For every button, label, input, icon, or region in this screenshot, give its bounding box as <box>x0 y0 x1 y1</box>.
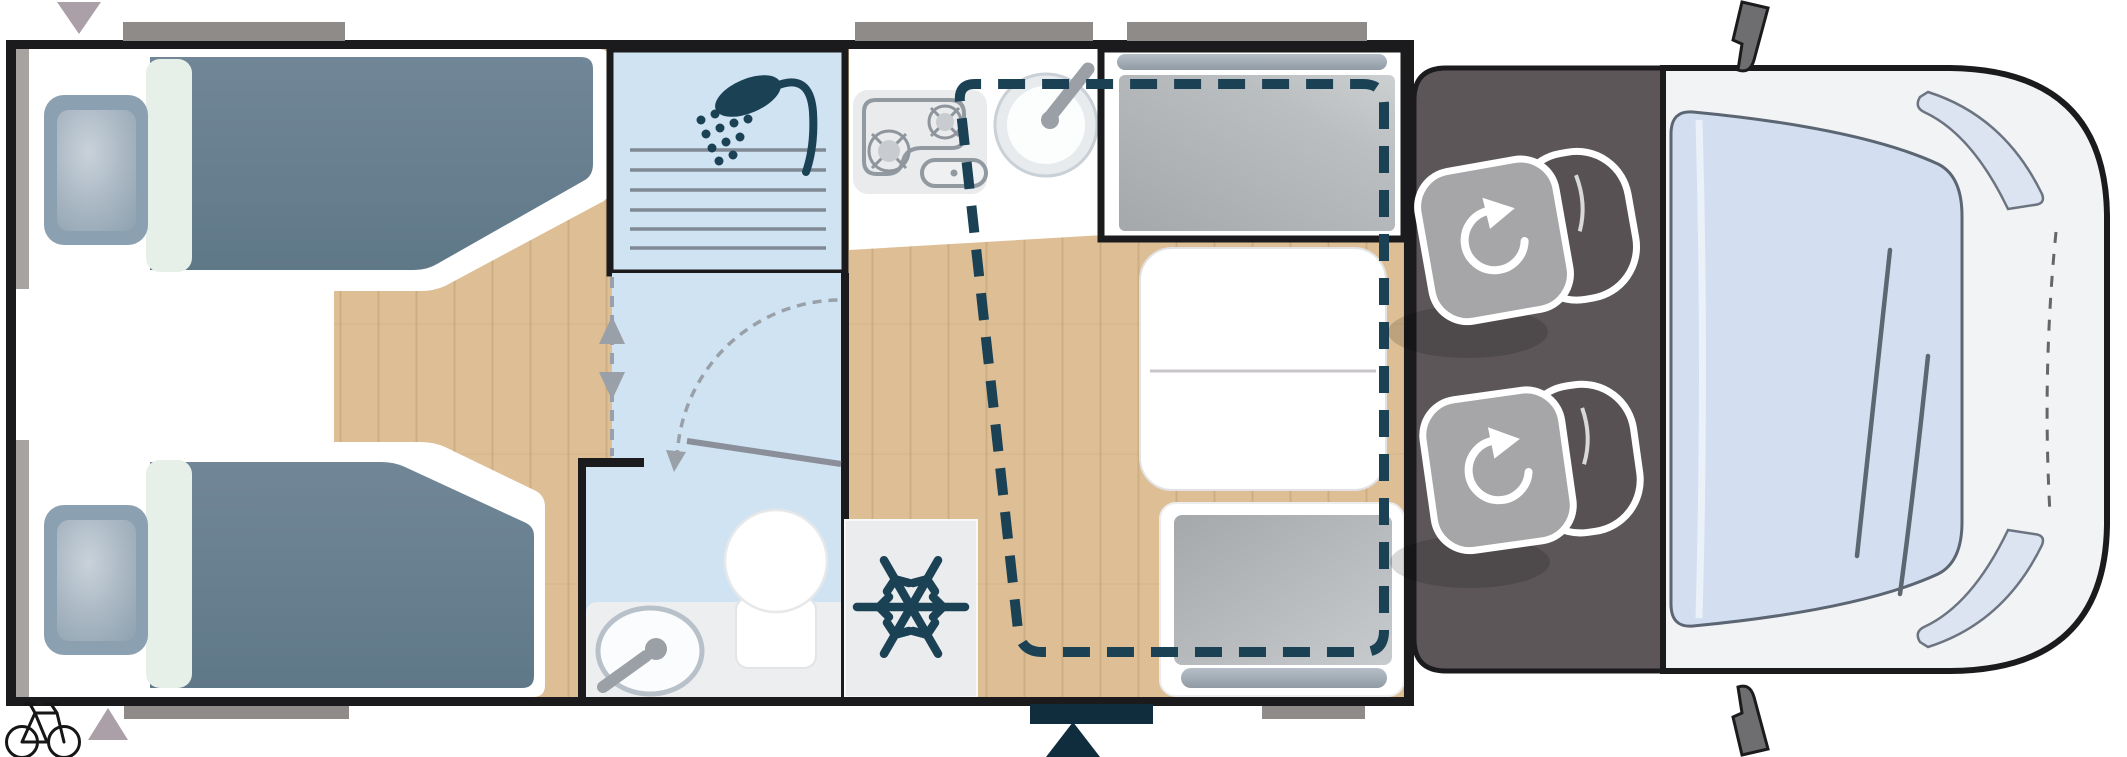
twin-bed-bottom <box>16 442 545 697</box>
window-marker <box>123 22 345 41</box>
washbasin-icon <box>598 608 702 694</box>
bedside-cabinet <box>16 291 334 442</box>
cab <box>1388 68 1663 671</box>
bicycle-icon <box>7 704 80 757</box>
wing-mirror-top <box>1733 2 1768 71</box>
entry-triangle-icon <box>1046 722 1100 757</box>
rear-window-top <box>16 49 29 289</box>
headrest-bar <box>1181 668 1387 688</box>
bench-front <box>1101 49 1404 239</box>
window-marker <box>124 706 349 719</box>
bathroom-wall-left <box>578 458 586 697</box>
seat-cushion <box>1418 385 1578 555</box>
motorhome-floorplan <box>0 0 2127 757</box>
wing-mirror-bottom <box>1733 686 1768 755</box>
shower-room <box>610 49 845 273</box>
entrance-step <box>1030 704 1153 724</box>
bench-rear <box>1160 503 1404 696</box>
seat-cushion <box>1119 75 1395 231</box>
bathroom-wall-stub <box>578 458 644 467</box>
bathroom <box>578 273 849 697</box>
dinette-table <box>1140 248 1386 490</box>
marker-triangle-icon <box>57 2 101 34</box>
seat-cushion <box>1412 153 1576 327</box>
window-marker <box>1127 22 1367 41</box>
refrigerator <box>845 520 977 697</box>
window-marker <box>1262 706 1365 719</box>
windshield <box>1671 112 1962 626</box>
toilet-icon <box>725 510 827 668</box>
driver-swivel-seat <box>1418 376 1647 556</box>
bed-sheet-fold <box>146 460 192 688</box>
pillow-inner <box>57 520 136 641</box>
seat-cushion <box>1174 515 1392 665</box>
window-marker <box>855 22 1093 41</box>
pillow-inner <box>57 110 136 231</box>
entrance <box>1030 704 1153 757</box>
vehicle-front <box>1663 2 2107 755</box>
headrest-bar <box>1117 54 1387 70</box>
rear-window-bottom <box>16 440 29 697</box>
bed-sheet-fold <box>146 59 192 272</box>
marker-triangle-icon <box>88 708 128 740</box>
floorplan-canvas <box>0 0 2127 757</box>
